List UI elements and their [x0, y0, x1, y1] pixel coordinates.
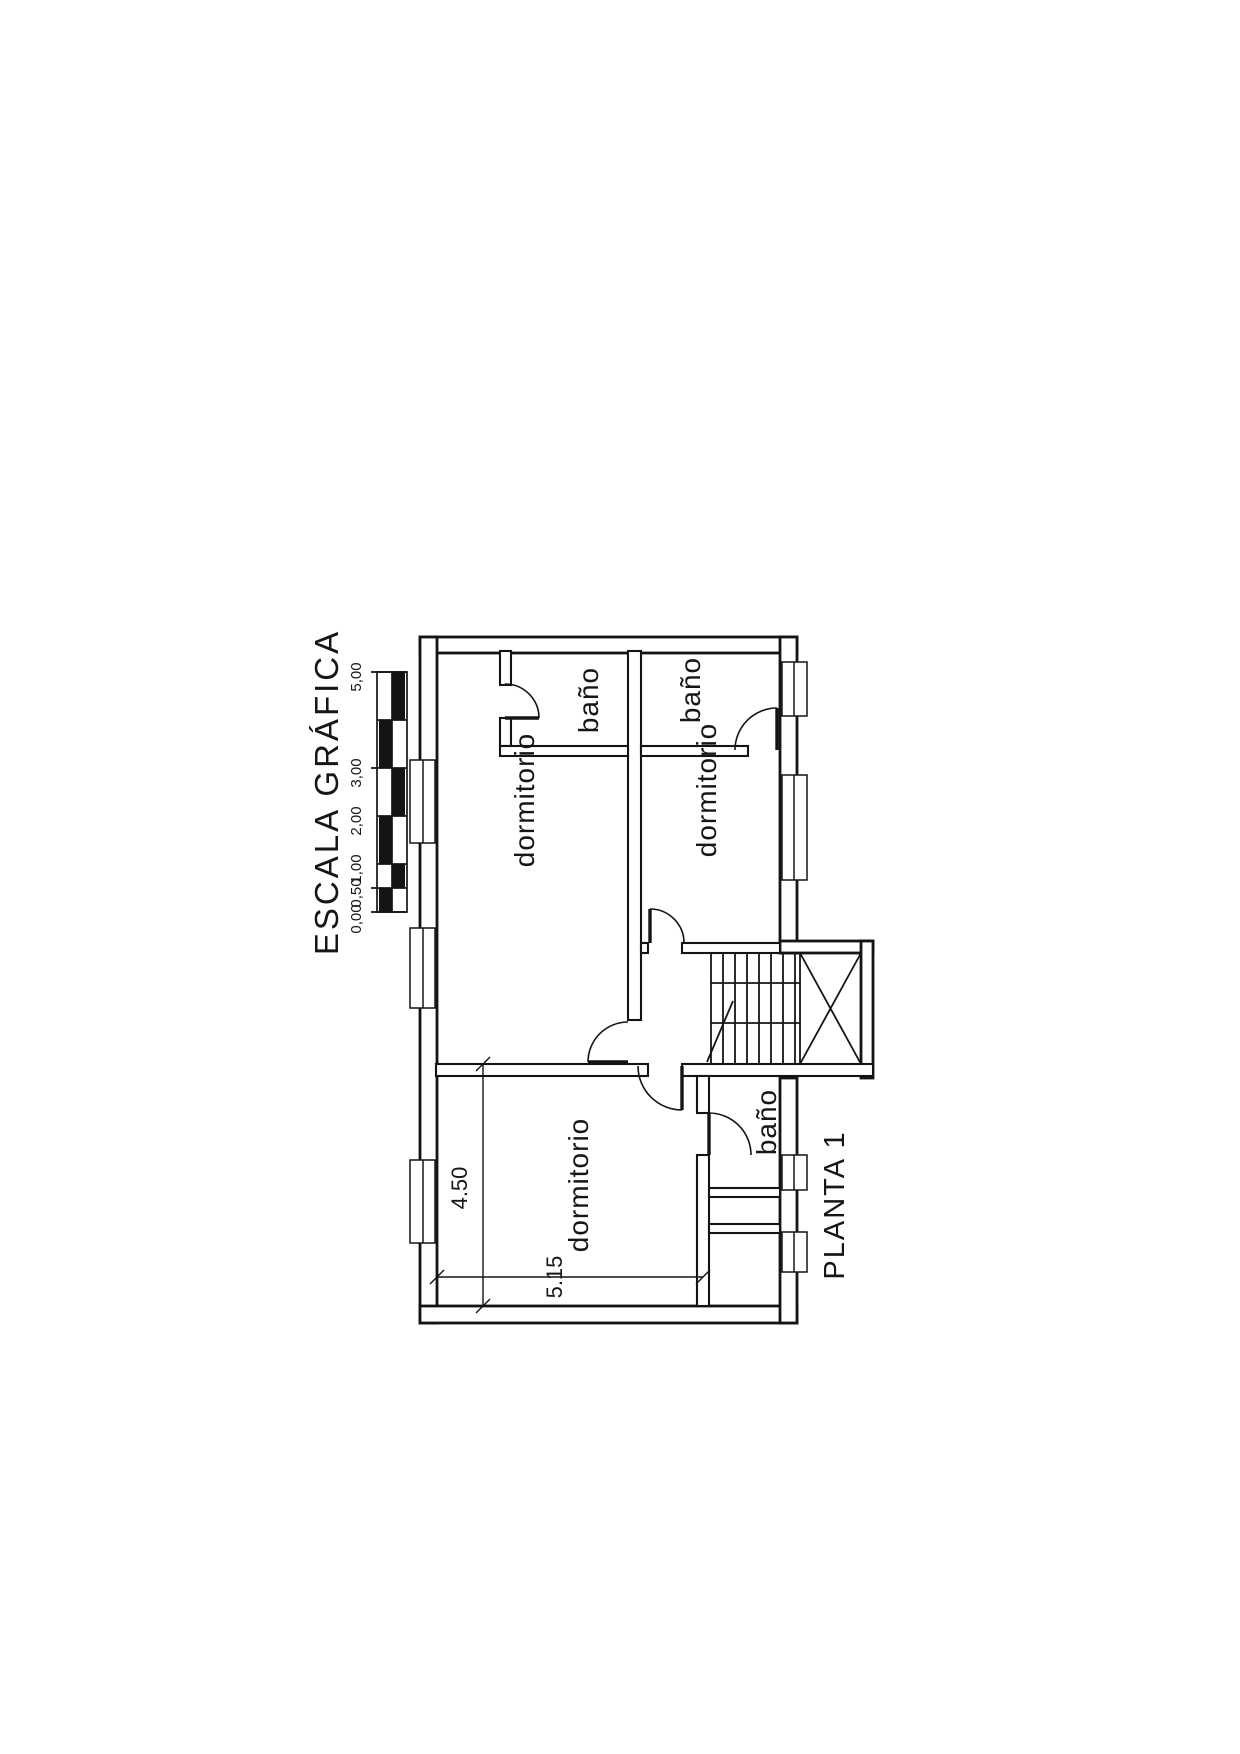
- drawing-sheet: ESCALA GRÁFICA 5,00 3,00 2,00 1,00 0,50 …: [0, 0, 1240, 1754]
- scale-tick-label: 2,00: [348, 806, 365, 835]
- wall-bano1-left-a: [500, 651, 511, 685]
- room-label-dormitorio-bottom: dormitorio: [563, 1118, 594, 1252]
- scale-bar-title: ESCALA GRÁFICA: [308, 629, 345, 955]
- scale-tick-label: 0,50: [348, 878, 365, 907]
- wall-hall-bottom-a: [436, 1064, 648, 1076]
- plan-title: PLANTA 1: [819, 1130, 851, 1279]
- wall-hall-bottom-b: [682, 1064, 873, 1076]
- door-bano-top-right: [735, 708, 777, 750]
- dimension-value: 4.50: [447, 1167, 472, 1210]
- door-bano-bottom: [709, 1113, 751, 1155]
- window-mark: [410, 760, 435, 843]
- room-label-bano-top-right: baño: [675, 657, 706, 723]
- dimension-value: 5.15: [542, 1256, 567, 1299]
- floor-plan-drawing: ESCALA GRÁFICA 5,00 3,00 2,00 1,00 0,50 …: [0, 0, 1240, 1754]
- wall-top: [420, 637, 797, 653]
- window-mark: [782, 1232, 807, 1272]
- scale-bar-segment: [392, 672, 405, 720]
- window-mark: [410, 1160, 435, 1243]
- room-label-dormitorio-top-left: dormitorio: [509, 733, 540, 867]
- wall-dorm2-bottom-b: [682, 943, 780, 953]
- window-mark: [782, 1155, 807, 1190]
- room-label-bano-top-left: baño: [573, 667, 604, 733]
- stair-bump-right-wall: [861, 941, 873, 1078]
- wall-bano3-left-a: [697, 1076, 709, 1113]
- door-dormitorio-top-left: [588, 1022, 628, 1062]
- window-mark: [410, 928, 435, 1008]
- door-dormitorio-right: [650, 909, 684, 943]
- scale-tick-label: 3,00: [348, 758, 365, 787]
- scale-bar-segment: [392, 864, 405, 888]
- door-bano-top-left: [505, 684, 539, 718]
- room-label-dormitorio-right: dormitorio: [691, 723, 722, 857]
- wall-closet-top: [709, 1224, 780, 1233]
- scale-tick-label: 5,00: [348, 662, 365, 691]
- window-mark: [782, 775, 807, 880]
- interior-walls: [436, 651, 873, 1306]
- dimension-4-50: 4.50: [447, 1057, 490, 1313]
- window-mark: [782, 662, 807, 716]
- scale-tick-label: 0,00: [348, 904, 365, 933]
- room-label-bano-bottom: baño: [751, 1089, 782, 1155]
- dimension-5-15: 5.15: [430, 1256, 710, 1299]
- wall-right-lower: [780, 1078, 797, 1323]
- wall-bano3-bottom: [709, 1188, 780, 1197]
- stairs: [707, 953, 861, 1064]
- wall-bottom: [420, 1306, 797, 1323]
- stair-bump-top-wall: [780, 941, 873, 953]
- scale-bar-segment: [379, 816, 392, 864]
- scale-bar-segment: [379, 720, 392, 768]
- scale-bar-segment: [379, 888, 392, 912]
- wall-bano3-left-b: [697, 1155, 709, 1306]
- wall-central-vertical: [628, 651, 641, 1020]
- scale-bar-segment: [392, 768, 405, 816]
- scale-bar: ESCALA GRÁFICA 5,00 3,00 2,00 1,00 0,50 …: [308, 629, 407, 955]
- outer-walls: [420, 637, 873, 1323]
- wall-dorm2-bottom-a: [641, 943, 648, 953]
